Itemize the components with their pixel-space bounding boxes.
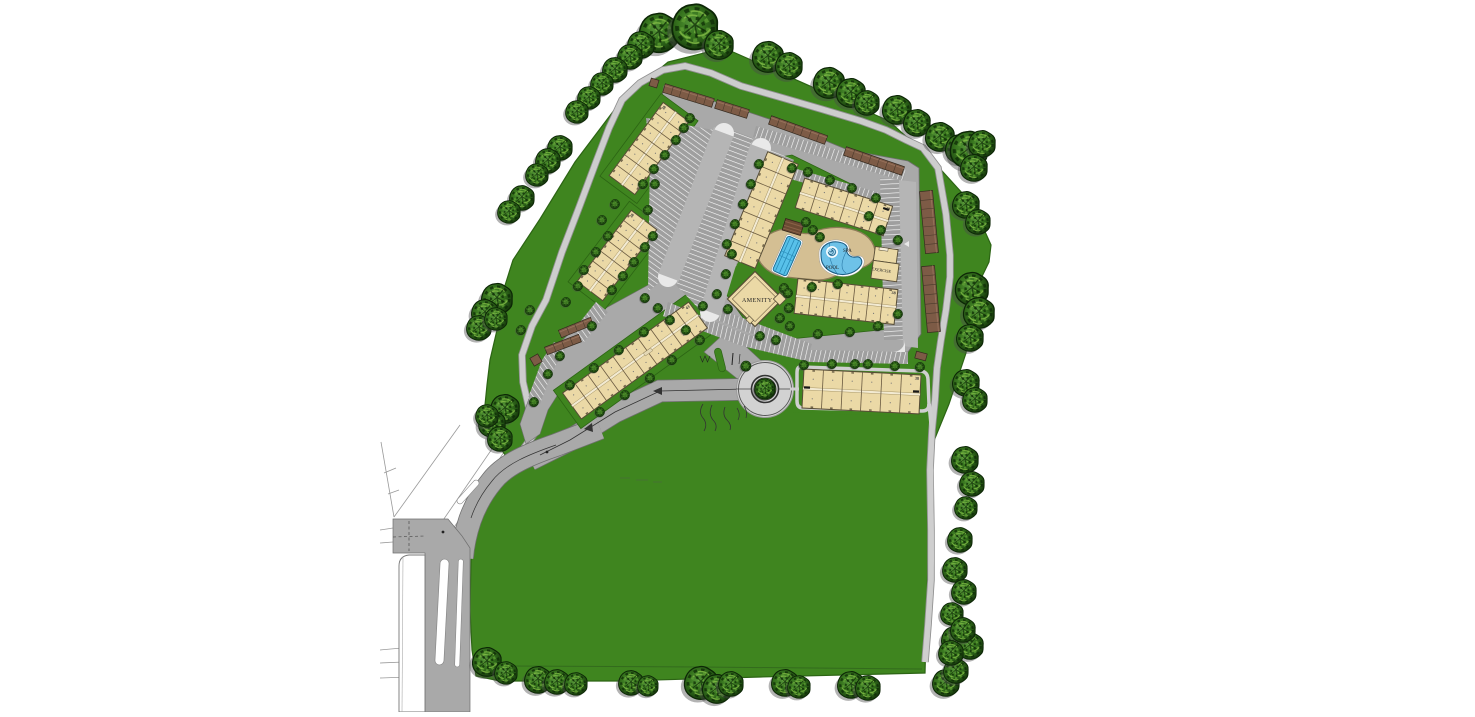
svg-text:POOL: POOL: [826, 266, 839, 271]
svg-text:38: 38: [891, 290, 896, 295]
svg-text:SPA: SPA: [843, 249, 852, 254]
svg-text:AMENITY: AMENITY: [742, 298, 773, 304]
svg-text:38: 38: [915, 376, 919, 381]
